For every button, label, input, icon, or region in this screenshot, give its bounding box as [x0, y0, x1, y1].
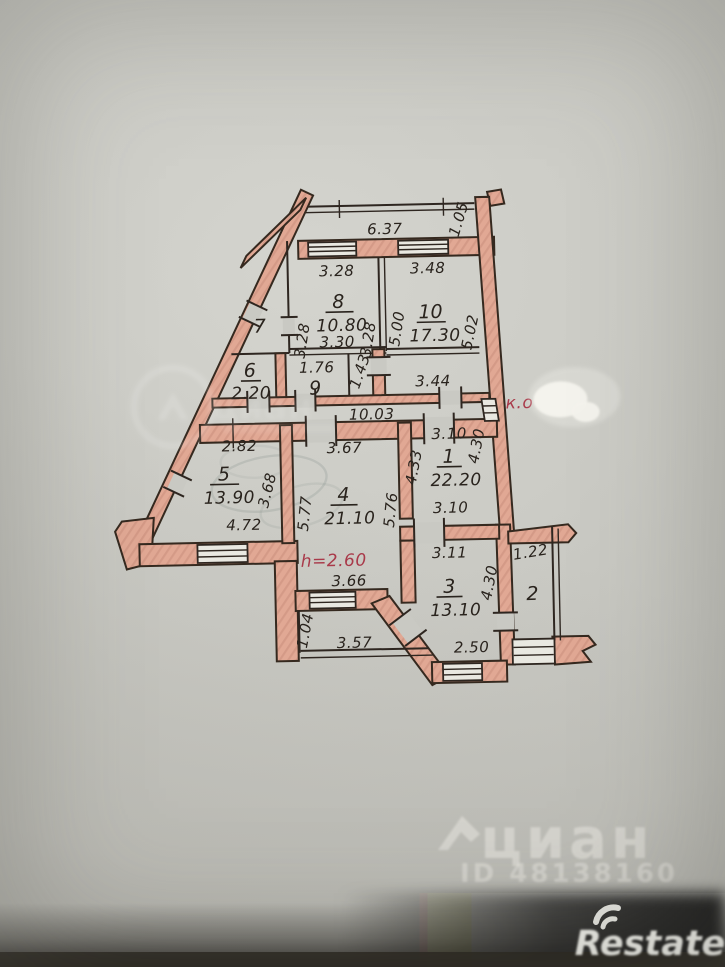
room-4-area: 21.10 [324, 508, 376, 529]
room-3-number: 3 [443, 576, 456, 598]
dim-3-57: 3.57 [337, 633, 373, 652]
room-7-number: 7 [254, 316, 267, 338]
dim-3-28-top: 3.28 [319, 262, 355, 281]
dim-1-43: 1.43 [346, 352, 374, 391]
cian-house-icon [438, 816, 480, 850]
dim-4-72: 4.72 [226, 516, 262, 535]
dim-1-05: 1.05 [445, 200, 472, 239]
watermark-cian-id: ID 48138160 [460, 859, 678, 889]
window-top-right [398, 240, 448, 255]
dim-3-66: 3.66 [331, 571, 367, 590]
window-right-vent [481, 399, 498, 421]
room-8-number: 8 [332, 291, 345, 313]
room-3-area: 13.10 [430, 600, 482, 621]
dim-10-03: 10.03 [349, 405, 395, 424]
house-icon [157, 392, 189, 420]
wall-room5-room4 [280, 425, 294, 543]
dim-2-82: 2.82 [221, 437, 257, 456]
room-5-area: 13.90 [204, 488, 256, 509]
ceiling-height-note: h=2.60 [301, 550, 367, 571]
room-2-number: 2 [526, 583, 539, 605]
dim-6-37: 6.37 [367, 220, 403, 239]
room-6-number: 6 [243, 360, 256, 382]
room-10-area: 17.30 [409, 325, 461, 346]
dim-5-00: 5.00 [385, 310, 408, 348]
photo-of-floor-plan: 6.37 1.05 3.28 3.48 3.28 3.28 5.00 5.02 … [0, 0, 725, 967]
floor-plan: 6.37 1.05 3.28 3.48 3.28 3.28 5.00 5.02 … [108, 183, 626, 692]
watermark-cian-word-faint: циан [211, 387, 312, 428]
dim-5-76: 5.76 [380, 491, 401, 528]
window-room3 [443, 663, 482, 681]
room-1-area: 22.20 [430, 470, 482, 491]
dim-5-02: 5.02 [458, 313, 483, 351]
window-room4-balcony [309, 592, 355, 609]
dim-3-10-top: 3.10 [431, 424, 467, 443]
room-1-number: 1 [442, 446, 455, 468]
dim-2-50: 2.50 [454, 638, 490, 657]
room-8-area: 10.80 [316, 315, 368, 336]
dim-5-77: 5.77 [294, 495, 315, 532]
window-room5 [197, 544, 247, 563]
floor-plan-svg: 6.37 1.05 3.28 3.48 3.28 3.28 5.00 5.02 … [0, 0, 725, 967]
top-parapet [298, 190, 504, 219]
dim-1-76: 1.76 [299, 358, 335, 377]
window-top-left [308, 242, 356, 257]
window-balcony2 [512, 639, 555, 665]
dim-3-44: 3.44 [415, 372, 451, 391]
watermark-cian-main: циан ID 48138160 [438, 807, 678, 889]
white-blob [528, 366, 621, 428]
restate-word: Restate [575, 924, 725, 964]
wall-room3-left [400, 540, 415, 602]
room-10-number: 10 [418, 301, 443, 324]
dim-3-10-lower: 3.10 [433, 498, 469, 517]
room-4-number: 4 [337, 484, 350, 506]
dim-3-11: 3.11 [432, 543, 468, 562]
dim-3-48: 3.48 [410, 259, 446, 278]
dim-3-67: 3.67 [326, 439, 362, 458]
room-5-number: 5 [218, 463, 231, 485]
wall-block-under-balcony [552, 636, 596, 665]
